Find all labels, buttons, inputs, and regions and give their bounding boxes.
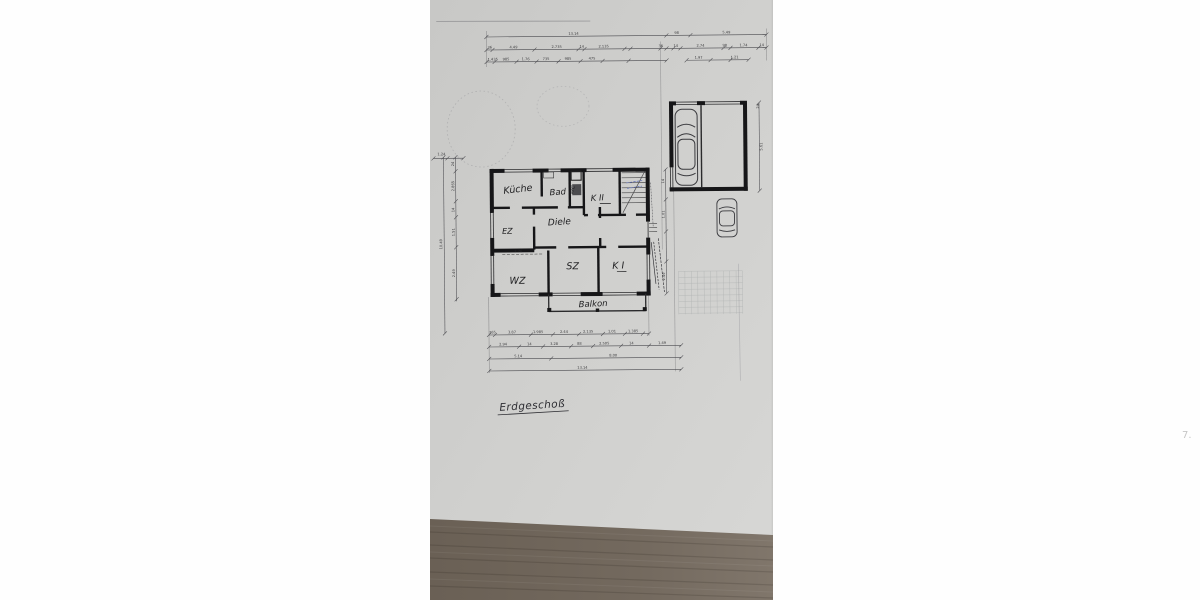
dim-label: 1.985 bbox=[533, 330, 543, 334]
garage-divider bbox=[701, 105, 702, 187]
dim-label: 2.44 bbox=[560, 330, 569, 334]
dim-label: 36 bbox=[487, 46, 492, 50]
photo-of-floor-plan: 2.76 Küche Bad WC K II EZ Diele SZ K I W… bbox=[0, 0, 1200, 600]
dim-label: 88 bbox=[577, 342, 582, 346]
dim-label: 10.49 bbox=[439, 238, 443, 249]
dim-label: 98 bbox=[722, 43, 727, 47]
dim-label: 14 bbox=[629, 341, 634, 345]
dim-label: 14 bbox=[527, 342, 532, 346]
dim-label: 1.01 bbox=[608, 329, 616, 333]
dim-label: 1.49 bbox=[658, 341, 667, 345]
dim-label: 13.14 bbox=[568, 32, 579, 36]
floor-plan-drawing: 2.76 Küche Bad WC K II EZ Diele SZ K I W… bbox=[430, 0, 773, 600]
room-label-diele: Diele bbox=[548, 217, 572, 228]
dim-label: 1.51 bbox=[452, 228, 456, 236]
photo-right-edge bbox=[772, 0, 773, 600]
dim-label: 98 bbox=[674, 31, 679, 35]
dim-label: 3.28 bbox=[550, 342, 559, 346]
dim-label: 5.61 bbox=[759, 143, 763, 151]
room-label-sz: SZ bbox=[566, 261, 579, 272]
dim-label: 5.14 bbox=[514, 354, 523, 358]
room-label-balkon: Balkon bbox=[578, 299, 607, 310]
dim-label: 2.94 bbox=[499, 342, 508, 346]
dim-label: 1.01 bbox=[661, 210, 665, 218]
dim-label: 4.49 bbox=[509, 45, 518, 49]
dim-label: 14 bbox=[451, 207, 455, 212]
dim-label: 14 bbox=[661, 178, 665, 183]
room-label-ez: EZ bbox=[502, 227, 513, 236]
dim-label: 2.735 bbox=[551, 45, 561, 49]
dim-label: 1.24 bbox=[437, 152, 446, 156]
paper-photo: 2.76 Küche Bad WC K II EZ Diele SZ K I W… bbox=[430, 0, 773, 600]
dim-label: 14 bbox=[673, 44, 678, 48]
dim-label: 13.14 bbox=[577, 366, 588, 370]
dim-label: 8.00 bbox=[609, 353, 618, 357]
dim-label: 3.87 bbox=[508, 330, 516, 334]
dim-label: 2.135 bbox=[598, 45, 608, 49]
dim-label: 24 bbox=[451, 161, 455, 166]
room-label-k1: K I bbox=[612, 260, 625, 272]
dim-label: 14 bbox=[759, 43, 764, 47]
room-label-k2: K II bbox=[590, 193, 604, 204]
right-white-band bbox=[773, 0, 1200, 600]
dim-label: 2.865 bbox=[451, 181, 455, 191]
dim-label: 1.21 bbox=[731, 55, 739, 59]
dim-label: 24 bbox=[756, 103, 760, 108]
dim-label: 1.76 bbox=[522, 57, 531, 61]
room-label-bad: Bad bbox=[549, 187, 567, 198]
dim-label: 1.74 bbox=[739, 43, 748, 47]
dim-label: 1.97 bbox=[695, 56, 703, 60]
dim-label: 5.49 bbox=[722, 30, 731, 34]
dim-label: 475 bbox=[589, 57, 596, 61]
dim-label: 735 bbox=[543, 57, 550, 61]
dim-label: 985 bbox=[565, 57, 572, 61]
dim-label: 2.505 bbox=[599, 342, 609, 346]
dim-label: 2.74 bbox=[696, 44, 705, 48]
stray-mark: 7. bbox=[1182, 430, 1192, 441]
dim-label: 36 bbox=[658, 44, 663, 48]
dim-label: 2.135 bbox=[583, 330, 593, 334]
dim-label: 2.49 bbox=[452, 269, 456, 278]
dim-label: 985 bbox=[503, 57, 510, 61]
dim-label: 14 bbox=[579, 45, 584, 49]
dim-label: 2.76 bbox=[514, 249, 523, 253]
dim-label: 365 bbox=[489, 331, 496, 335]
dim-label: 2.49 bbox=[662, 272, 666, 281]
dim-label: 1.435 bbox=[488, 57, 498, 61]
dim-label: 1.385 bbox=[628, 329, 638, 333]
left-white-band bbox=[0, 0, 430, 600]
room-label-wz: WZ bbox=[509, 276, 525, 287]
